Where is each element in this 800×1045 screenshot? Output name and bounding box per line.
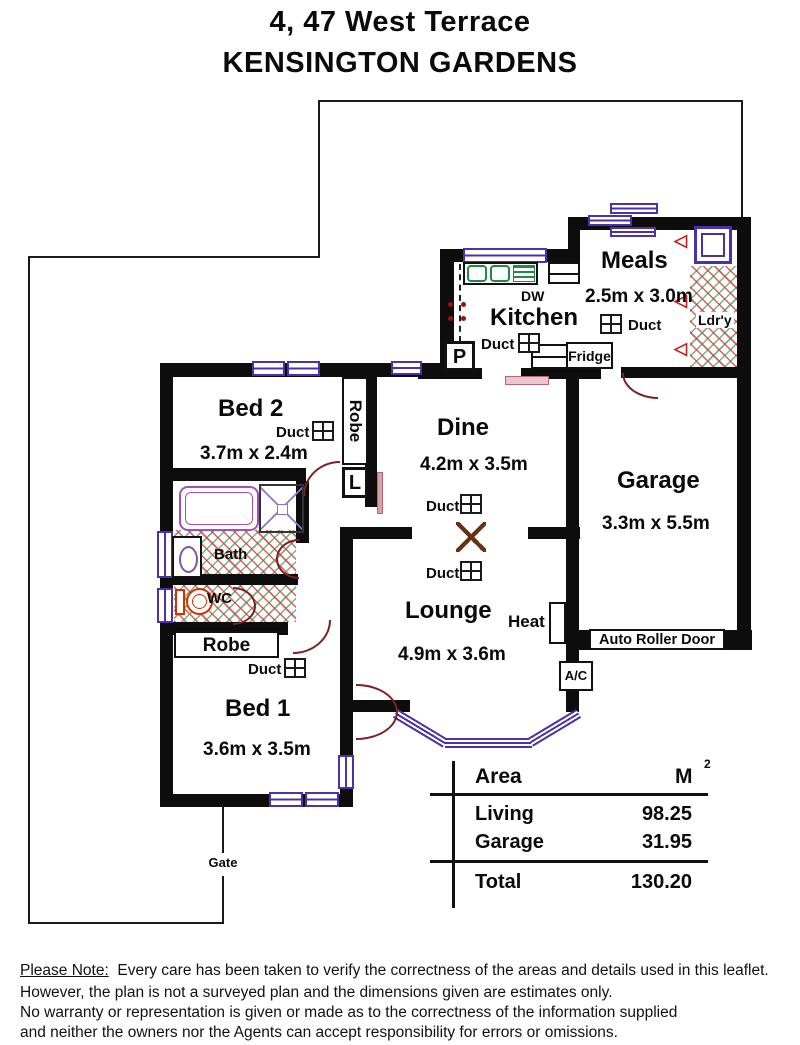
- laundry-door-mark-3: ◁: [674, 340, 687, 357]
- page-title-address: 4, 47 West Terrace: [0, 6, 800, 39]
- bay-window-right: [528, 709, 581, 746]
- wall-bed2-south: [160, 468, 306, 481]
- linen-closet: L: [342, 467, 368, 498]
- hall-double-door-arc-top: [356, 684, 398, 712]
- toilet-bowl-inner: [192, 594, 207, 609]
- auto-roller-door: Auto Roller Door: [589, 629, 725, 650]
- dishwasher-icon: [513, 265, 535, 282]
- wall-hall-lounge-stub-left: [340, 527, 412, 539]
- bed2-door-arc: [303, 461, 340, 496]
- duct-icon-meals: [600, 314, 622, 334]
- disclaimer-line4: and neither the owners nor the Agents ca…: [20, 1024, 618, 1042]
- wall-west: [160, 363, 173, 807]
- hall-double-door-arc-bottom: [356, 712, 398, 740]
- boundary-step: [28, 256, 320, 258]
- bed1-door-arc: [293, 620, 331, 654]
- duct-label-bed1: Duct: [248, 661, 281, 678]
- window-bath: [157, 531, 173, 578]
- entry-threshold: [505, 376, 549, 385]
- window-bed2-b: [287, 361, 320, 376]
- kitchen-sink-bowl-2: [490, 265, 510, 282]
- floor-plan-page: 4, 47 West Terrace KENSINGTON GARDENS Ga…: [0, 0, 800, 1045]
- pantry-dot: [461, 316, 466, 321]
- duct-icon-bed1: [284, 658, 306, 678]
- bed1-robe-closet: Robe: [174, 631, 279, 658]
- area-table-total-value: 130.20: [617, 871, 692, 894]
- laundry-trough: [694, 226, 732, 264]
- laundry-door-mark-1: ◁: [674, 232, 687, 249]
- garage-entry-door-arc: [622, 373, 658, 399]
- disclaimer-line2: However, the plan is not a surveyed plan…: [20, 984, 613, 1002]
- bay-window-center: [445, 738, 532, 748]
- meals-name: Meals: [601, 247, 668, 275]
- ceiling-fan-icon: [456, 522, 486, 552]
- window-bed1-b: [305, 792, 339, 807]
- bath-name: Bath: [214, 546, 247, 563]
- window-kitchen: [463, 248, 547, 263]
- window-bed1-east: [338, 755, 354, 789]
- bed1-dims: 3.6m x 3.5m: [203, 739, 311, 761]
- area-table-header-superscript: 2: [704, 757, 711, 771]
- gate-fence-lower: [222, 876, 224, 924]
- bed2-name: Bed 2: [218, 395, 283, 423]
- page-title-suburb: KENSINGTON GARDENS: [0, 47, 800, 80]
- kitchen-name: Kitchen: [490, 304, 578, 332]
- hall-door-leaf: [377, 472, 383, 514]
- vanity: [172, 536, 202, 578]
- disclaimer-line3: No warranty or representation is given o…: [20, 1004, 677, 1022]
- garage-name: Garage: [617, 467, 700, 495]
- gate-fence-upper: [222, 807, 224, 853]
- duct-icon-lounge: [460, 561, 482, 581]
- window-hall: [391, 361, 422, 375]
- duct-label-meals: Duct: [628, 317, 661, 334]
- bed2-dims: 3.7m x 2.4m: [200, 443, 308, 465]
- shower: [259, 484, 304, 533]
- fridge-box: Fridge: [566, 342, 613, 369]
- shower-drain: [277, 504, 288, 515]
- dishwasher-label: DW: [521, 288, 544, 304]
- kitchen-sink-bowl-1: [467, 265, 487, 282]
- meals-dims: 2.5m x 3.0m: [585, 286, 693, 308]
- area-table-row-garage-value: 31.95: [630, 831, 692, 854]
- bed2-robe-label: Robe: [345, 400, 365, 443]
- area-table-row-living-label: Living: [475, 803, 534, 826]
- window-bed1-a: [269, 792, 303, 807]
- area-table-vline: [452, 761, 455, 908]
- area-table-header-col2: M: [675, 765, 693, 789]
- duct-label-bed2: Duct: [276, 424, 309, 441]
- garage-dims: 3.3m x 5.5m: [602, 513, 710, 535]
- duct-label-lounge: Duct: [426, 565, 459, 582]
- area-table-row-living-value: 98.25: [630, 803, 692, 826]
- boundary-top: [318, 100, 743, 102]
- wall-kitchen-meals-step: [568, 217, 580, 262]
- heater-label: Heat: [508, 612, 545, 632]
- duct-icon-bed2: [312, 421, 334, 441]
- dine-name: Dine: [437, 414, 489, 442]
- bay-window-left: [393, 709, 448, 747]
- wall-garage-west: [566, 365, 579, 712]
- boundary-right: [741, 100, 743, 219]
- duct-label-dine: Duct: [426, 498, 459, 515]
- area-table-hline1: [430, 793, 708, 796]
- window-meals-2: [588, 215, 632, 226]
- disclaimer-heading: Please Note:: [20, 962, 109, 979]
- disclaimer-line1: Please Note: Every care has been taken t…: [20, 962, 769, 980]
- lounge-name: Lounge: [405, 597, 492, 625]
- boundary-left-upper: [318, 100, 320, 258]
- boundary-bottom: [28, 922, 224, 924]
- dine-dims: 4.2m x 3.5m: [420, 454, 528, 476]
- duct-label-kitchen: Duct: [481, 336, 514, 353]
- window-meals-3: [610, 227, 656, 237]
- pantry-dot: [448, 316, 453, 321]
- area-table-total-label: Total: [475, 871, 521, 894]
- pantry-box: P: [444, 341, 475, 371]
- wc-name: WC: [207, 590, 232, 607]
- duct-icon-kitchen: [518, 333, 540, 353]
- wall-east: [737, 217, 751, 650]
- area-table-header-col1: Area: [475, 765, 522, 789]
- pantry-dot: [461, 302, 466, 307]
- boundary-left: [28, 256, 30, 924]
- bed2-robe-closet: Robe: [342, 377, 368, 465]
- disclaimer-line1-text: Every care has been taken to verify the …: [117, 962, 768, 979]
- pantry-dot: [448, 302, 453, 307]
- area-table-row-garage-label: Garage: [475, 831, 544, 854]
- kitchen-bench-return: [548, 262, 580, 284]
- bed1-name: Bed 1: [225, 695, 290, 723]
- duct-icon-dine: [460, 494, 482, 514]
- ac-unit: A/C: [559, 661, 593, 691]
- area-table-hline2: [430, 860, 708, 863]
- window-bed2-a: [252, 361, 285, 376]
- toilet-cistern: [175, 589, 185, 615]
- lounge-dims: 4.9m x 3.6m: [398, 644, 506, 666]
- bathtub: [179, 486, 259, 531]
- laundry-name: Ldr'y: [696, 312, 734, 328]
- bathtub-inner: [185, 492, 253, 525]
- vanity-basin: [179, 546, 198, 573]
- window-meals-1: [610, 203, 658, 214]
- window-wc: [157, 588, 173, 623]
- gate-label: Gate: [197, 855, 249, 870]
- heater-unit: [549, 602, 566, 644]
